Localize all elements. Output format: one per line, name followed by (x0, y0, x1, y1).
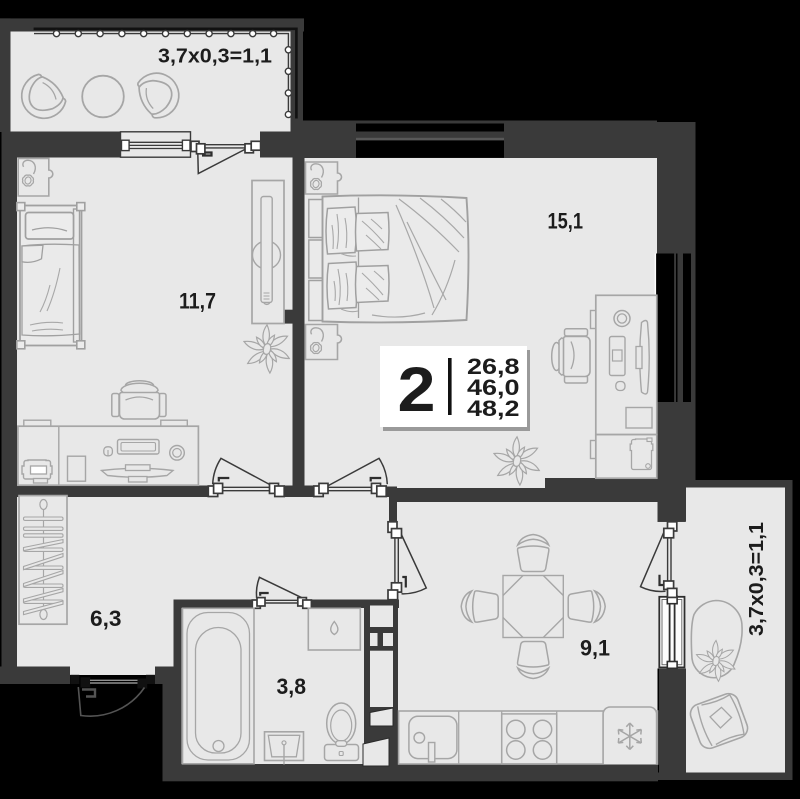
svg-text:6,3: 6,3 (90, 606, 122, 631)
svg-text:11,7: 11,7 (179, 289, 216, 314)
svg-text:2: 2 (398, 355, 436, 425)
svg-text:9,1: 9,1 (580, 636, 610, 661)
svg-text:15,1: 15,1 (548, 209, 584, 234)
svg-text:3,7x0,3=1,1: 3,7x0,3=1,1 (746, 522, 768, 636)
svg-text:48,2: 48,2 (467, 396, 520, 421)
svg-text:3,7x0,3=1,1: 3,7x0,3=1,1 (158, 46, 272, 68)
svg-text:3,8: 3,8 (277, 674, 307, 699)
